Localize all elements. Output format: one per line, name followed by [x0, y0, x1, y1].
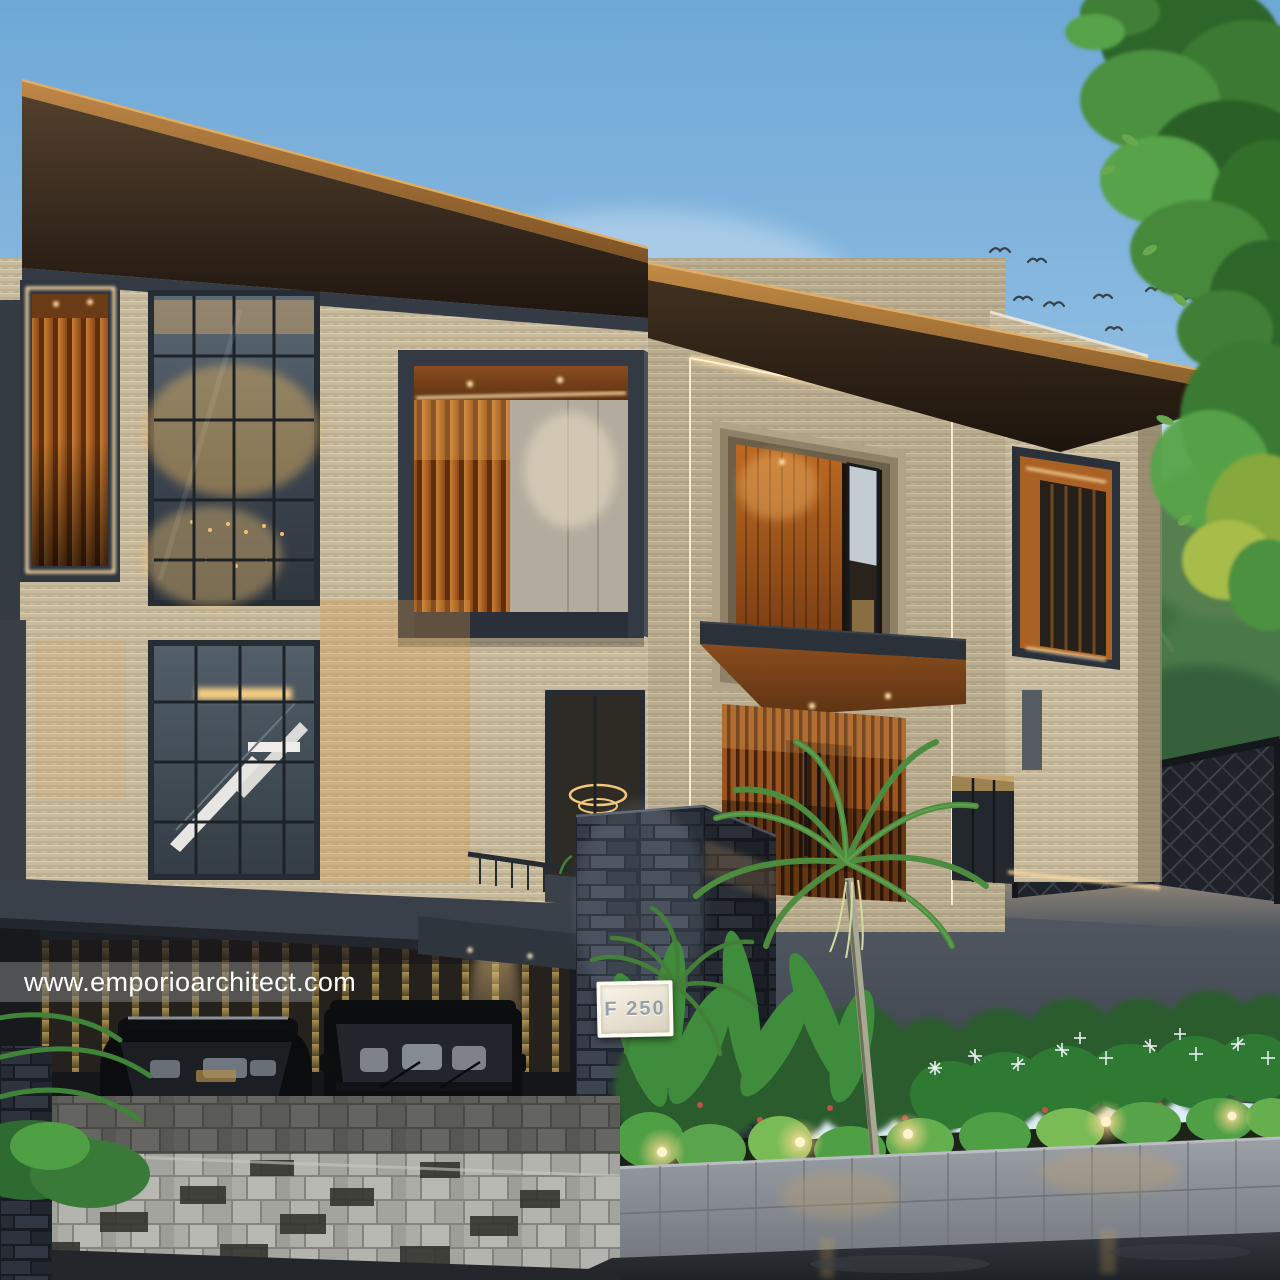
- concrete-bracket: [1022, 690, 1042, 770]
- warm-washed-wall: [320, 600, 470, 882]
- house-number-text: F 250: [604, 997, 666, 1021]
- architectural-render-scene: www.emporioarchitect.com F 250: [0, 0, 1280, 1280]
- curtain-wall-staircase: [148, 640, 320, 880]
- right-window: [1012, 446, 1120, 670]
- render-canvas: [0, 0, 1280, 1280]
- curtain-wall-upper: [142, 290, 320, 606]
- louver-screen-upper-left: [20, 280, 120, 582]
- left-facade: [0, 258, 654, 910]
- house-number-plaque: F 250: [596, 980, 673, 1038]
- watermark: www.emporioarchitect.com: [0, 962, 314, 1002]
